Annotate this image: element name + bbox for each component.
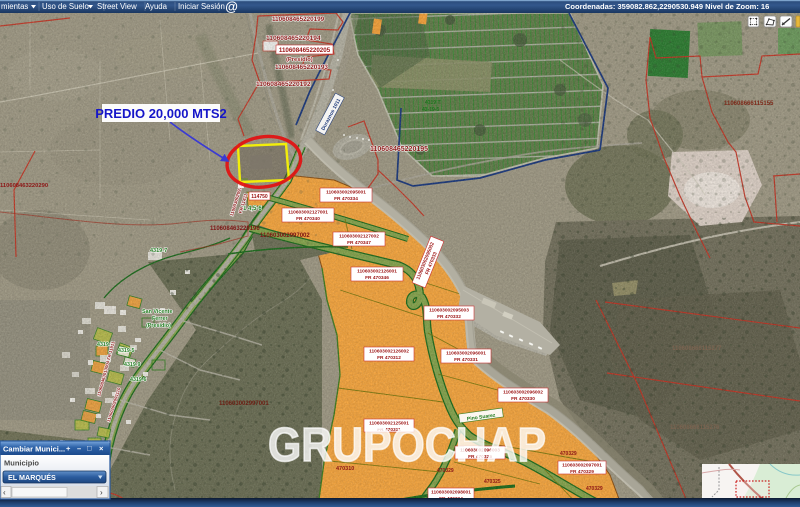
svg-text:470325: 470325 [484, 479, 501, 485]
svg-text:×: × [99, 444, 104, 453]
svg-text:114750: 114750 [251, 194, 268, 200]
svg-text:110608463220290: 110608463220290 [0, 183, 48, 189]
svg-text:110603002997001: 110603002997001 [219, 401, 269, 407]
svg-text:110603002126002: 110603002126002 [369, 349, 409, 355]
svg-text:110603002126001: 110603002126001 [357, 269, 397, 275]
svg-text:110608666115276: 110608666115276 [670, 425, 720, 431]
svg-text:110603002095003: 110603002095003 [429, 308, 469, 314]
svg-text:110608465220195: 110608465220195 [370, 146, 428, 153]
svg-text:FR 470332: FR 470332 [437, 314, 461, 320]
svg-text:mientas: mientas [1, 2, 28, 11]
svg-text:›: › [100, 488, 103, 497]
svg-text:110608463220196: 110608463220196 [210, 226, 260, 232]
svg-text:110603002096002: 110603002096002 [503, 390, 543, 396]
svg-text:110603002127002: 110603002127002 [339, 234, 379, 240]
svg-text:110603002096001: 110603002096001 [446, 351, 486, 357]
svg-text:‹: ‹ [3, 488, 6, 497]
svg-text:110603002097001: 110603002097001 [562, 463, 602, 469]
svg-text:110608465220199: 110608465220199 [272, 16, 325, 23]
svg-text:Street View: Street View [97, 2, 137, 11]
svg-text:FR 470346: FR 470346 [365, 275, 389, 281]
svg-text:FR 470329: FR 470329 [570, 469, 594, 475]
svg-text:110608666115277: 110608666115277 [672, 346, 722, 352]
svg-text:Iniciar Sesión: Iniciar Sesión [178, 2, 225, 11]
svg-text:110603002095001: 110603002095001 [326, 190, 366, 196]
svg-text:FR 470331: FR 470331 [454, 357, 478, 363]
svg-text:110603002997002: 110603002997002 [260, 233, 310, 239]
svg-text:FR 470312: FR 470312 [377, 355, 401, 361]
svg-text:4319-9: 4319-9 [124, 362, 141, 368]
svg-text:+: + [66, 444, 71, 453]
svg-text:110603002127001: 110603002127001 [288, 210, 328, 216]
svg-text:Municipio: Municipio [4, 459, 39, 468]
svg-text:FR 470347: FR 470347 [347, 240, 371, 246]
svg-text:110608465220193: 110608465220193 [275, 64, 328, 71]
svg-text:GRUPOCHAP: GRUPOCHAP [268, 419, 546, 472]
svg-text:110608465220205: 110608465220205 [279, 47, 331, 54]
svg-text:110608465220192: 110608465220192 [256, 81, 311, 88]
svg-text:470329: 470329 [586, 486, 603, 492]
svg-text:(Presidio): (Presidio) [146, 323, 171, 329]
svg-text:FR 470334: FR 470334 [334, 196, 358, 202]
svg-text:110608465220194: 110608465220194 [266, 35, 321, 42]
svg-text:FR 470340: FR 470340 [296, 216, 320, 222]
svg-text:1 4,5-6: 1 4,5-6 [243, 206, 262, 212]
svg-text:110608666115155: 110608666115155 [724, 101, 774, 107]
svg-text:PREDIO 20,000 MTS2: PREDIO 20,000 MTS2 [95, 106, 227, 121]
svg-text:@: @ [225, 0, 238, 14]
svg-text:(Presidio): (Presidio) [286, 57, 313, 63]
svg-text:San Vicente: San Vicente [142, 309, 172, 315]
svg-text:–: – [77, 444, 81, 453]
svg-text:FR 470330: FR 470330 [511, 396, 535, 402]
svg-text:Uso de Suelo: Uso de Suelo [42, 2, 89, 11]
svg-text:Coordenadas: 359082.862,229053: Coordenadas: 359082.862,2290530.949 Nive… [565, 2, 769, 11]
svg-text:Ayuda: Ayuda [145, 2, 168, 11]
svg-text:4319-7: 4319-7 [150, 248, 167, 254]
svg-text:4319-6: 4319-6 [130, 377, 147, 383]
svg-text:470329: 470329 [560, 451, 577, 457]
svg-text:Ferrer: Ferrer [152, 316, 168, 322]
svg-text:EL MARQUÉS: EL MARQUÉS [8, 473, 56, 482]
svg-text:110603002098001: 110603002098001 [431, 490, 471, 496]
svg-text:□: □ [87, 444, 92, 453]
svg-text:4319-5: 4319-5 [118, 348, 135, 354]
svg-text:Cambiar Munici...: Cambiar Munici... [3, 445, 65, 454]
